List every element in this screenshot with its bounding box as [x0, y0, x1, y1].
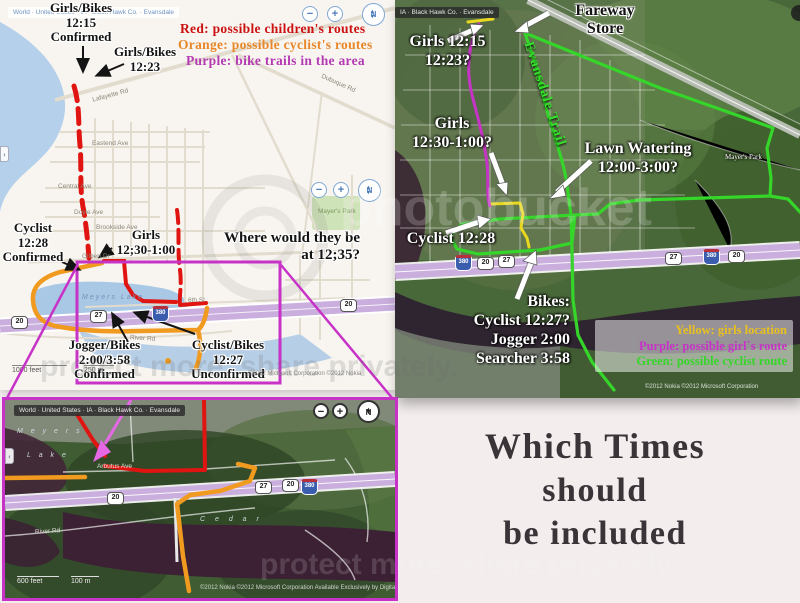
i380-shield: 380 — [301, 479, 318, 495]
legend-red: Red: possible children's routes — [180, 21, 365, 37]
zoom-in-button[interactable]: + — [332, 403, 348, 419]
partial-control-button[interactable] — [791, 5, 800, 21]
us20-shield-2: 20 — [340, 299, 357, 312]
i380-shield: 380 — [455, 255, 472, 271]
satellite-map-panel[interactable]: IA · Black Hawk Co. · Evansdale Fareway … — [395, 0, 800, 398]
route-legend: Yellow: girls location Purple: possible … — [595, 320, 793, 372]
i380-shield: 380 — [152, 306, 169, 322]
scale-meters: 250 m — [84, 365, 114, 374]
annotation-cyclist-1228: Cyclist 12:28 Confirmed — [0, 221, 68, 265]
annotation-jogger-bikes: Jogger/Bikes 2:00/3:58 Confirmed — [52, 338, 157, 382]
meyers-lake-label: Meyers Lake — [82, 294, 144, 301]
annotation-girls-bikes-1223: Girls/Bikes 12:23 — [105, 45, 185, 74]
breadcrumb[interactable]: World · United States · IA · Black Hawk … — [14, 405, 185, 416]
us20-shield: 20 — [477, 257, 494, 270]
orange-route-dot — [165, 358, 171, 364]
i380-shield-2: 380 — [703, 249, 720, 265]
compass-control[interactable]: N — [357, 400, 380, 423]
annotation-cyclist-1228: Cyclist 12:28 — [395, 230, 507, 249]
legend-purple: Purple: possible girl`s route — [595, 339, 787, 355]
cedar-river-shape — [0, 22, 65, 212]
title-block: Which Times should be included — [440, 428, 750, 551]
street-brookside: Brookside Ave — [96, 224, 137, 231]
annotation-girls-1230: Girls 12:30-1:00? — [397, 115, 507, 153]
pan-left-button[interactable]: ‹ — [0, 146, 9, 162]
street-sixth: 6th St — [188, 297, 205, 304]
annotation-where-would-they-be: Where would they be at 12;35? — [198, 230, 360, 264]
zoom-in-button[interactable]: + — [327, 6, 343, 22]
title-line-1: Which Times — [440, 428, 750, 464]
annotation-fareway-store: Fareway Store — [550, 2, 660, 38]
zoom-out-button[interactable]: − — [313, 403, 329, 419]
ia27-shield: 27 — [255, 481, 272, 494]
legend-yellow: Yellow: girls location — [595, 323, 787, 339]
screenshot-root: { "page": { "title": { "lines": ["Which … — [0, 0, 800, 603]
ia27-shield: 27 — [90, 310, 107, 323]
ia27-shield: 27 — [498, 255, 515, 268]
legend-green: Green: possible cyclist route — [595, 354, 787, 370]
cedar-label: C e d a r — [200, 516, 263, 523]
ia27-shield-2: 27 — [665, 252, 682, 265]
scale-meters: 100 m — [71, 576, 99, 585]
copyright: ©2012 Microsoft Corporation ©2012 Nokia — [248, 371, 361, 377]
annotation-bikes-times: Bikes: Cyclist 12:27? Jogger 2:00 Search… — [440, 293, 570, 369]
mayers-park-label: Mayer's Park — [725, 153, 762, 161]
copyright: ©2012 Nokia ©2012 Microsoft Corporation … — [200, 585, 398, 591]
annotation-girls-1230: Girls 12;30-1:00 — [108, 228, 184, 257]
breadcrumb[interactable]: IA · Black Hawk Co. · Evansdale — [395, 7, 499, 18]
zoom-in-button-2[interactable]: + — [333, 182, 349, 198]
zoom-out-button[interactable]: − — [302, 6, 318, 22]
title-line-2: should — [440, 474, 750, 508]
scale-feet: 600 feet — [17, 576, 59, 585]
title-line-3: be included — [440, 517, 750, 551]
pan-left-button[interactable]: ‹ — [5, 448, 14, 464]
us20-shield-2: 20 — [282, 479, 299, 492]
compass-control-2[interactable]: N — [358, 179, 381, 202]
street-doyle: Doyle Ave — [74, 209, 103, 216]
us20-shield: 20 — [107, 492, 124, 505]
copyright: ©2012 Nokia ©2012 Microsoft Corporation — [645, 384, 758, 390]
us20-shield: 20 — [11, 316, 28, 329]
annotation-girls-bikes-1215: Girls/Bikes 12:15 Confirmed — [36, 1, 126, 45]
annotation-girls-1215: Girls 12:15 12:23? — [395, 33, 500, 71]
street-eastend: Eastend Ave — [92, 140, 128, 147]
inset-satellite-panel[interactable]: World · United States · IA · Black Hawk … — [2, 397, 398, 601]
legend-orange: Orange: possible cyclist's routes — [178, 37, 373, 53]
lake-label: L a k e — [27, 452, 69, 459]
street-central: Central Ave — [58, 183, 91, 190]
inset-orange-route — [5, 477, 85, 478]
annotation-lawn-watering: Lawn Watering 12:00-3:00? — [568, 140, 708, 178]
meyers-label: M e y e r s — [17, 428, 83, 435]
arbutus-label: Arbutus Ave — [97, 463, 132, 470]
inset-red-route-3 — [204, 400, 205, 470]
red-children-routes — [74, 86, 206, 305]
legend-purple: Purple: bike trails in the area — [186, 53, 365, 69]
street-gilbert: Gilbert Dr — [82, 253, 110, 260]
scale-feet: 1000 feet — [12, 365, 67, 374]
us20-shield-2: 20 — [728, 250, 745, 263]
road-map-panel[interactable]: World · United States · IA · Black Hawk … — [0, 0, 395, 390]
mayers-park-label: Mayer's Park — [318, 208, 356, 215]
zoom-out-button-2[interactable]: − — [311, 182, 327, 198]
